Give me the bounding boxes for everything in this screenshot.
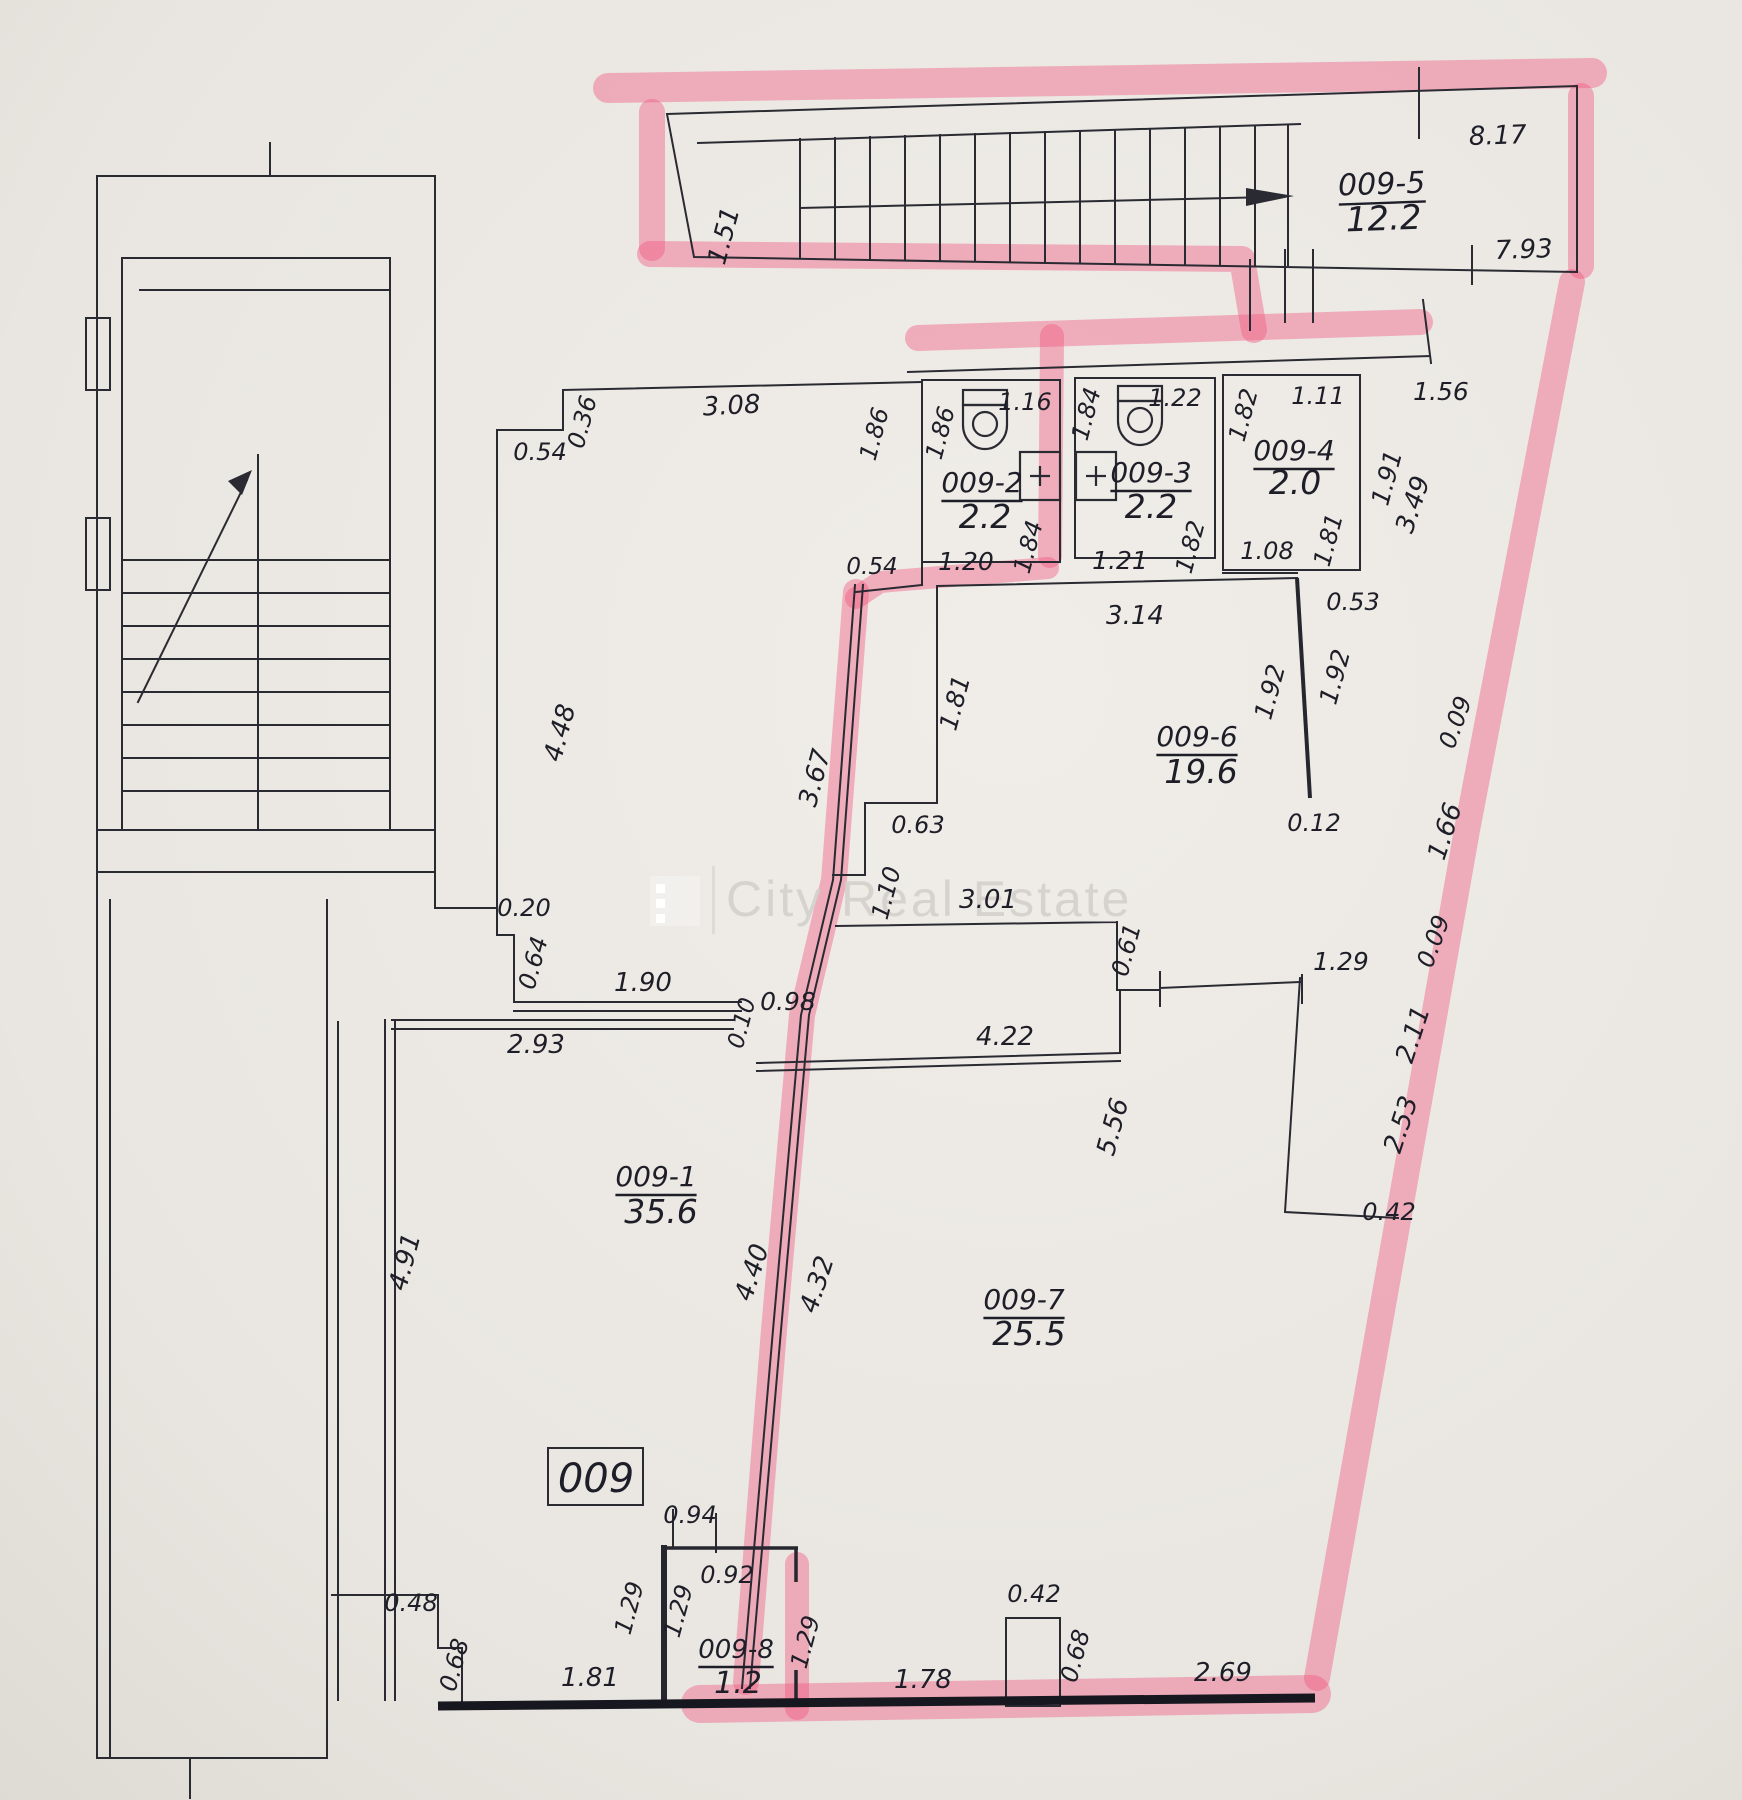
dimension-label: 1.90 [614, 968, 672, 998]
room-area-label: 2.2 [1125, 487, 1177, 526]
room-id-label: 009-3 [1110, 456, 1191, 489]
dimension-label: 0.53 [1326, 588, 1379, 616]
dimension-label: 1.20 [938, 547, 994, 576]
dimension-label: 0.12 [1287, 809, 1340, 837]
dimension-label: 3.01 [959, 885, 1017, 915]
dimension-label: 8.17 [1468, 120, 1527, 152]
watermark-text: City Real Estate [726, 871, 1132, 927]
room-area-label: 12.2 [1345, 198, 1422, 241]
room-area-label: 19.6 [1164, 752, 1237, 791]
dimension-label: 0.48 [384, 1589, 437, 1617]
dimension-label: 0.54 [846, 554, 897, 580]
dimension-label: 2.93 [507, 1030, 565, 1060]
dimension-label: 7.93 [1494, 234, 1553, 266]
room-area-label: 25.5 [992, 1314, 1065, 1353]
dimension-label: 1.22 [1148, 384, 1201, 412]
watermark-divider [712, 866, 715, 934]
room-id-label: 009-1 [615, 1160, 696, 1193]
dimension-label: 1.08 [1240, 537, 1293, 565]
dimension-label: 0.92 [700, 1561, 753, 1589]
dimension-label: 0.54 [513, 438, 566, 466]
room-id-label: 009-2 [941, 466, 1022, 499]
dimension-label: 3.08 [702, 390, 761, 423]
room-area-label: 2.2 [959, 497, 1011, 536]
dimension-label: 2.69 [1194, 1658, 1252, 1688]
dimension-label: 0.63 [891, 811, 944, 839]
room-id-label: 009-7 [983, 1283, 1065, 1316]
room-area-label: 2.0 [1269, 463, 1321, 502]
dimension-label: 1.16 [998, 388, 1051, 416]
room-area-label: 1.2 [714, 1666, 762, 1701]
dimension-label: 0.94 [663, 1501, 716, 1529]
floor-plan-canvas: 009 City Real Estate 1.518.17009-512.27.… [0, 0, 1742, 1800]
dimension-label: 3.14 [1106, 601, 1164, 631]
dimension-label: 1.56 [1413, 377, 1469, 406]
dimension-label: 1.29 [1313, 947, 1369, 976]
unit-number-label: 009 [558, 1456, 634, 1502]
dimension-label: 1.78 [894, 1665, 952, 1695]
dimension-label: 1.21 [1092, 546, 1148, 575]
room-id-label: 009-6 [1156, 720, 1237, 753]
dimension-label: 0.42 [1007, 1580, 1060, 1608]
scanned-floor-plan-page: 009 City Real Estate 1.518.17009-512.27.… [0, 0, 1742, 1800]
dimension-label: 1.11 [1291, 382, 1344, 410]
room-area-label: 35.6 [624, 1192, 697, 1231]
dimension-label: 1.81 [561, 1663, 619, 1693]
unit-number-box: 009 [548, 1448, 643, 1505]
dimension-label: 0.20 [497, 894, 550, 922]
dimension-label: 4.22 [976, 1022, 1034, 1052]
dimension-label: 0.42 [1362, 1198, 1415, 1226]
room-id-label: 009-8 [698, 1635, 774, 1665]
dimension-label: 0.98 [760, 987, 816, 1016]
